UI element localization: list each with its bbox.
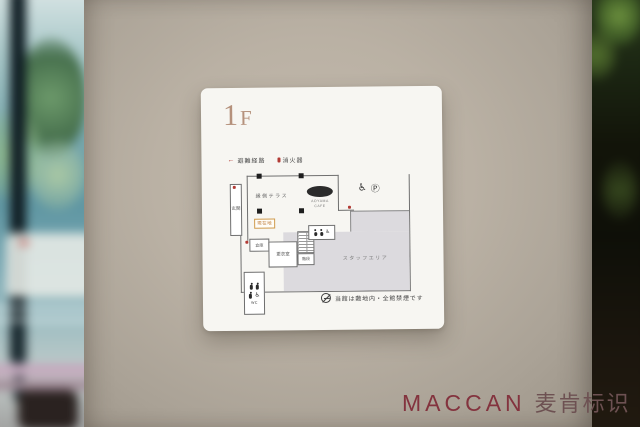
dark-window: [592, 0, 640, 427]
restroom-icons-row: ♿: [249, 291, 260, 298]
stairs-label: 階段: [298, 256, 313, 262]
legend-evacuation-route: ← 避難経路: [227, 156, 265, 165]
service-area-upper: [350, 210, 409, 232]
facility-icons: ♿ Ⓟ: [358, 181, 380, 194]
background-window-scene: [0, 0, 88, 427]
photo-scene: 1F ← 避難経路 消火器: [0, 0, 640, 427]
pink-pipe: [0, 380, 88, 390]
person-icon: [249, 291, 253, 298]
wheelchair-icon: ♿: [358, 183, 367, 194]
railing-line: [0, 306, 88, 310]
equipment-red-accent: [20, 240, 28, 245]
notice-text: 当館は敷地内・全館禁煙です: [335, 292, 423, 302]
window-glass: [0, 0, 88, 427]
pillar: [257, 209, 262, 214]
storage-room: 倉庫: [249, 239, 269, 252]
person-icon: [313, 229, 317, 236]
fire-extinguisher-icon: [277, 157, 280, 162]
no-smoking-notice: 当館は敷地内・全館禁煙です: [321, 292, 424, 303]
pillar: [257, 174, 262, 179]
you-are-here-badge: 現在地: [254, 218, 275, 228]
floor-number: 1: [223, 99, 240, 132]
floor-guide-sign: 1F ← 避難経路 消火器: [201, 86, 445, 332]
wheelchair-icon: ♿: [325, 230, 330, 235]
watermark-brand-chinese: 麦肯标识: [535, 386, 631, 418]
changing-room-label: 更衣室: [269, 251, 296, 257]
storage-label: 倉庫: [250, 242, 268, 248]
legend-extinguisher-label: 消火器: [282, 155, 303, 164]
background-dark-strip: [592, 0, 640, 427]
no-smoking-icon: [321, 293, 331, 303]
stairs-rail: [306, 232, 307, 252]
pink-pipe: [0, 364, 88, 376]
blurred-equipment: [6, 233, 88, 297]
railing-line: [0, 318, 88, 322]
staff-area-label: スタッフエリア: [322, 254, 408, 262]
floor-title: 1F: [223, 101, 254, 131]
changing-room: 更衣室: [268, 241, 297, 267]
cafe-caption: AOYAMA CAFE: [296, 199, 344, 209]
wall-line-left-lower: [240, 235, 242, 293]
person-icon: [319, 229, 323, 236]
cafe-logo-oval: [307, 186, 333, 197]
fire-extinguisher-marker: [233, 186, 236, 189]
map-legend: ← 避難経路 消火器: [227, 155, 303, 165]
wheelchair-icon: ♿: [255, 292, 260, 298]
arrow-left-icon: ←: [227, 157, 235, 164]
restroom-upper: ♿: [308, 225, 335, 240]
fire-extinguisher-marker: [245, 241, 248, 244]
dark-object: [18, 390, 78, 427]
wc-label: WC: [251, 300, 258, 304]
pillar: [299, 173, 304, 178]
wall-line-left: [247, 176, 249, 241]
terrace-label: 縁側テラス: [250, 192, 294, 199]
foliage-blob: [30, 140, 85, 210]
fire-extinguisher-marker: [348, 206, 351, 209]
floor-suffix: F: [240, 106, 254, 130]
watermark-brand: MACCAN: [402, 390, 526, 417]
entrance-label: 玄関: [228, 206, 244, 212]
legend-evacuation-label: 避難経路: [237, 156, 265, 165]
legend-fire-extinguisher: 消火器: [277, 155, 303, 164]
restroom-block: ♿ WC: [244, 272, 265, 315]
person-icon: [255, 282, 259, 289]
restroom-icons-row: [249, 282, 259, 289]
person-icon: [249, 282, 253, 289]
parking-icon: Ⓟ: [371, 181, 380, 194]
watermark: MACCAN 麦肯标识: [402, 386, 631, 418]
stairs-landing: 階段: [297, 253, 314, 265]
leaf-blob: [602, 160, 638, 220]
cafe-caption-line2: CAFE: [296, 204, 344, 209]
